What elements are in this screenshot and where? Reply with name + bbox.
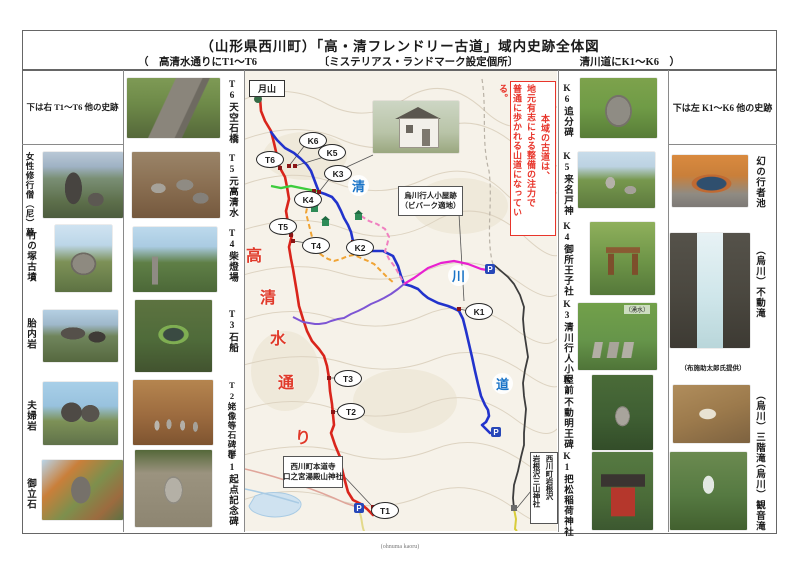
parking-icon: P [354, 503, 364, 513]
marker-t2: T2 [337, 403, 365, 420]
divider [123, 70, 124, 532]
kiyokawa-route-char: 清 [348, 175, 369, 196]
shrine-icon [511, 505, 517, 511]
site-label-t3: T3石船 [225, 310, 238, 360]
parking-icon: P [485, 264, 495, 274]
divider [22, 144, 123, 145]
photo-t4 [133, 227, 217, 292]
site-label-t2: T2姥像等石碑群 [225, 380, 238, 446]
photo-t5 [132, 152, 220, 218]
site-label-fudotaki: （烏川）不動滝 [752, 245, 765, 330]
site-label-joseishugyoso: 女性修行僧（尼）墓 [23, 152, 36, 222]
marker-k3: K3 [324, 165, 352, 182]
site-label-t4: T4柴燈場 [225, 229, 238, 287]
takashimizu-route-char: 水 [270, 325, 286, 349]
kiyokawa-route-char: 川 [448, 265, 469, 286]
photo-joseishugyoso [43, 152, 123, 218]
marker-k4: K4 [294, 191, 322, 208]
bivouac-line1: 烏川行人小屋跡 [404, 191, 457, 201]
page-subtitle: （ 高清水通りにT1～T6 〔ミステリアス・ランドマーク設定個所〕 清川道にK1… [138, 54, 680, 69]
site-label-k4: K4御所王子社 [560, 222, 573, 294]
hut-door [422, 129, 430, 146]
gassan-label: 月山 [249, 80, 285, 97]
divider [558, 70, 559, 532]
marker-t5: T5 [269, 218, 297, 235]
temple-callout: 西川町本道寺 口之宮湯殿山神社 [283, 456, 343, 488]
route-notice: 本域の古道は、 地元有志による整備の注力で 普通に歩かれる山道になっている。 [510, 81, 556, 236]
site-label-k1: K1把松稲荷神社 [560, 452, 573, 530]
kiyokawa-route-char: 道 [492, 373, 513, 394]
page-title: （山形県西川町）「高・清フレンドリー古道」域内史跡全体図 [0, 35, 800, 55]
site-label-t1: T1起点記念碑 [225, 452, 238, 524]
marker-t3: T3 [334, 370, 362, 387]
photo-k6 [580, 78, 657, 138]
trail-map-page: { "title": { "line1": "（山形県西川町）「高・清フレンドリ… [0, 0, 800, 566]
marker-t6: T6 [256, 151, 284, 168]
site-label-k2: K2不動明王碑 [560, 375, 573, 447]
parking-icon: P [491, 427, 501, 437]
hut-body [399, 118, 439, 148]
left-column-header: 下は右 T1～T6 他の史跡 [22, 70, 123, 144]
takashimizu-route-char: 通 [278, 369, 294, 393]
photo-sankaitaki [673, 385, 750, 443]
notice-col3: 普通に歩かれる山道になっている。 [496, 84, 524, 233]
bivouac-line2: （ビバーク適地） [401, 201, 461, 211]
photo-gyojaike [672, 155, 748, 207]
photo-credit: （布施助太郎氏提供） [668, 362, 758, 372]
photo-tainaiiwa [43, 310, 118, 362]
subtitle-mid: 〔ミステリアス・ランドマーク設定個所〕 [319, 54, 519, 69]
notice-col2: 地元有志による整備の注力で [524, 84, 538, 233]
photo-k5 [578, 152, 655, 208]
subtitle-left: （ 高清水通りにT1～T6 [138, 54, 257, 69]
takashimizu-route-char: 高 [246, 242, 262, 266]
temple-line2: 口之宮湯殿山神社 [283, 472, 343, 482]
marker-k5: K5 [318, 144, 346, 161]
site-label-takenotsuka: 竹の塚古墳 [23, 230, 36, 292]
photo-k4 [590, 222, 655, 295]
site-label-tainaiiwa: 胎内岩 [23, 318, 36, 358]
site-label-sankaitaki: （烏川）三階滝 [752, 390, 765, 445]
takashimizu-route-char: 清 [260, 284, 276, 308]
photo-meotoiwa [43, 382, 118, 445]
hut-window [406, 125, 413, 133]
marker-t1: T1 [371, 502, 399, 519]
site-label-otateishi: 御立石 [23, 478, 36, 518]
photo-fudotaki [670, 233, 750, 348]
photo-t1 [135, 450, 212, 527]
photo-t3 [135, 300, 212, 372]
photo-takenotsuka [55, 225, 112, 292]
photo-t2 [133, 380, 213, 445]
hut-icons [310, 202, 363, 226]
site-label-t5: T5元高清水 [225, 154, 238, 218]
map-credit: (ohnuma kaoru) [360, 544, 440, 550]
takashimizu-route-char: り [295, 424, 311, 448]
subtitle-right: 清川道にK1～K6 ） [580, 54, 680, 69]
purple-route [293, 284, 404, 324]
marker-k2: K2 [346, 239, 374, 256]
site-label-gyojaike: 幻の行者池 [752, 156, 765, 208]
site-label-k3: K3清川行人小屋前 [560, 300, 573, 380]
iwanesawa-line2: 岩根沢三山神社 [530, 455, 543, 521]
marker-k1: K1 [465, 303, 493, 320]
site-label-k6: K6追分碑 [560, 84, 573, 140]
right-column-header: 下は左 K1～K6 他の史跡 [668, 70, 777, 144]
k3-photo-note: （湧水） [624, 305, 650, 314]
photo-k2 [592, 375, 653, 450]
photo-k1 [592, 452, 653, 530]
site-label-k5: K5来名戸神 [560, 152, 573, 212]
iwanesawa-callout: 西川町岩根沢 岩根沢三山神社 [530, 452, 558, 524]
photo-otateishi [42, 460, 123, 520]
site-label-kannontaki: （烏川）観音滝 [752, 458, 765, 530]
temple-line1: 西川町本道寺 [291, 462, 336, 472]
yellow-route [514, 509, 517, 531]
notice-col1: 本域の古道は、 [538, 114, 552, 233]
photo-seikawa-hut [373, 101, 459, 153]
bivouac-callout: 烏川行人小屋跡 （ビバーク適地） [398, 186, 463, 216]
marker-t4: T4 [302, 237, 330, 254]
photo-kannontaki [670, 452, 747, 530]
photo-t6 [127, 78, 220, 138]
site-label-meotoiwa: 夫婦岩 [23, 400, 36, 440]
divider [668, 144, 777, 145]
iwanesawa-line1: 西川町岩根沢 [543, 455, 556, 521]
site-label-t6: T6天空石橋 [225, 80, 238, 142]
